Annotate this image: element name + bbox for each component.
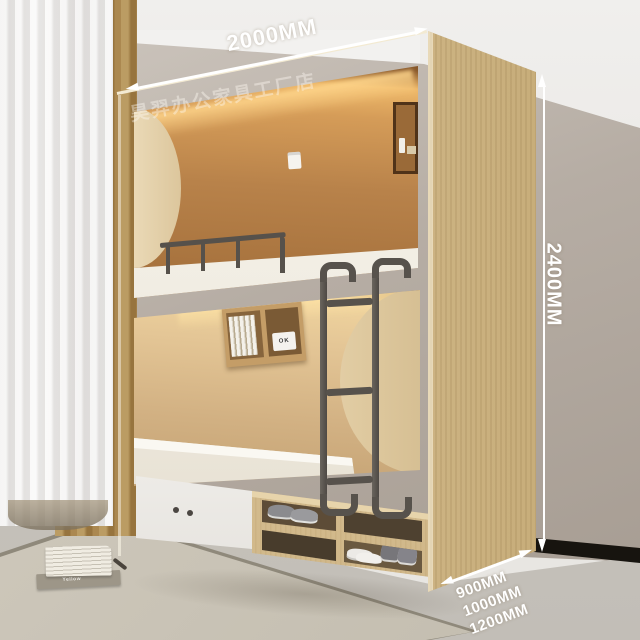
- upper-wall-shelf: [393, 102, 418, 174]
- ladder-foot: [320, 494, 358, 516]
- shelf-books: [228, 315, 257, 357]
- shelf-box: [407, 146, 416, 154]
- drawer-knob: [187, 510, 193, 516]
- guardrail-end-post: [280, 236, 285, 273]
- guardrail-post: [236, 241, 240, 268]
- ladder-foot: [372, 497, 412, 519]
- bed-front-edge-highlight: [118, 95, 121, 556]
- drawer-knob: [173, 507, 179, 513]
- shelf-bottle: [399, 138, 405, 153]
- gray-sneaker: [290, 508, 318, 523]
- book-stack: Yellow: [33, 544, 127, 597]
- arrow-right-icon: [414, 25, 428, 35]
- dimension-label-height: 2400MM: [542, 230, 565, 340]
- shelf-clock: OK: [272, 331, 296, 351]
- product-photo-bunk-bed: Yellow OK: [0, 0, 640, 640]
- ladder-hook: [372, 258, 411, 278]
- guardrail-post: [201, 244, 205, 271]
- shelf-compartment-left: [226, 310, 264, 360]
- dimension-arrow-height: 2400MM: [534, 74, 554, 552]
- arrow-down-icon: [538, 539, 546, 552]
- power-socket: [287, 152, 301, 170]
- guardrail-post: [166, 247, 170, 274]
- shelf-compartment-right: OK: [265, 307, 302, 357]
- ladder-rail: [372, 272, 379, 504]
- white-sneaker: [355, 551, 382, 564]
- sheer-curtain: [0, 0, 113, 526]
- ladder-hook: [320, 262, 356, 282]
- lower-wall-shelf: OK: [222, 301, 307, 368]
- open-book: [45, 545, 112, 576]
